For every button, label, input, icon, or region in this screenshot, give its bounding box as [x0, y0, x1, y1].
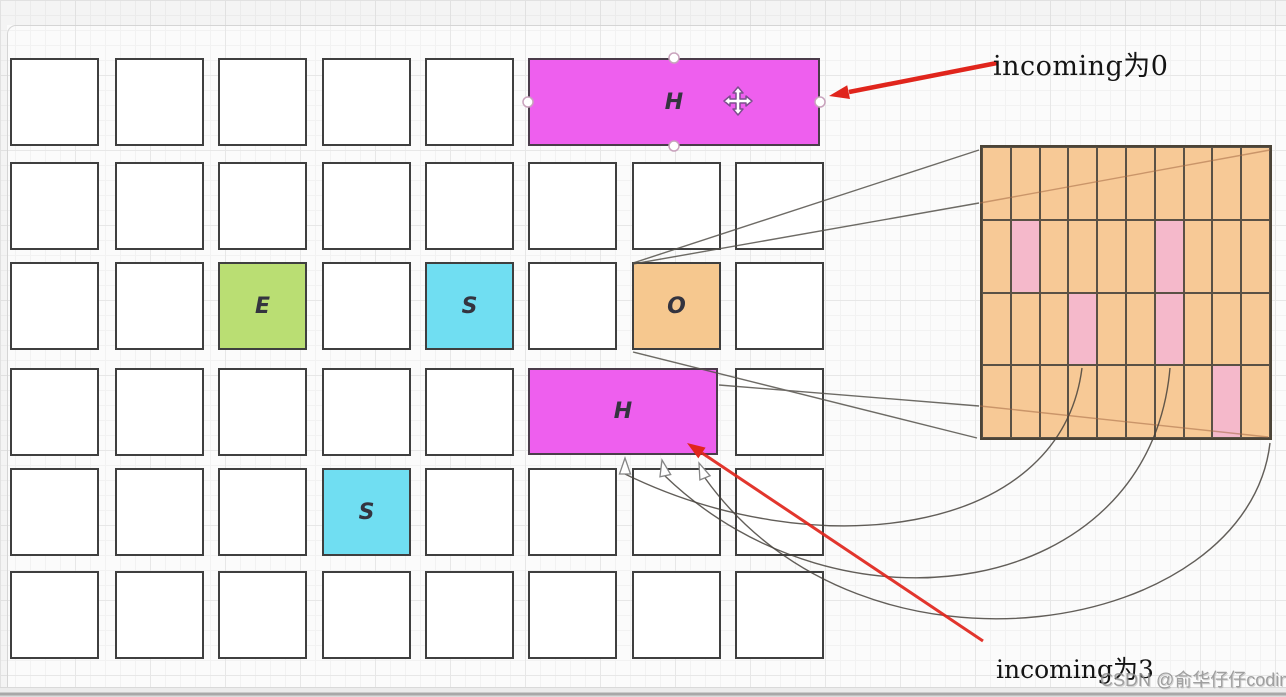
bitmap-cell[interactable]	[1040, 220, 1069, 293]
grid-cell[interactable]	[735, 162, 824, 250]
bitmap-cell[interactable]	[1184, 365, 1213, 438]
bitmap-cell[interactable]	[1126, 365, 1155, 438]
bitmap-cell[interactable]	[1011, 365, 1040, 438]
bitmap-cell[interactable]	[1097, 147, 1126, 220]
bitmap-cell[interactable]	[1126, 220, 1155, 293]
cell-letter: H	[665, 90, 683, 115]
grid-cell[interactable]	[115, 368, 204, 456]
h-block-bottom[interactable]: H	[528, 368, 718, 455]
grid-cell[interactable]	[10, 468, 99, 556]
bitmap-cell[interactable]	[1068, 147, 1097, 220]
grid-cell[interactable]	[218, 571, 307, 659]
grid-cell[interactable]	[10, 58, 99, 146]
bitmap-cell[interactable]	[1097, 220, 1126, 293]
grid-cell[interactable]	[322, 571, 411, 659]
grid-cell[interactable]	[218, 468, 307, 556]
grid-cell[interactable]	[735, 368, 824, 456]
bitmap-cell[interactable]	[982, 220, 1011, 293]
cell-e-r3c3[interactable]: E	[218, 262, 307, 350]
bitmap-cell[interactable]	[1097, 365, 1126, 438]
canvas-bottom-edge	[0, 687, 1286, 697]
bitmap-cell[interactable]	[1097, 293, 1126, 366]
grid-cell[interactable]	[632, 162, 721, 250]
h-block-top[interactable]: H	[528, 58, 820, 146]
cell-o-r3c7[interactable]: O	[632, 262, 721, 350]
grid-cell[interactable]	[528, 162, 617, 250]
grid-cell[interactable]	[425, 58, 514, 146]
bitmap-cell[interactable]	[1184, 147, 1213, 220]
bitmap-cell[interactable]	[1155, 365, 1184, 438]
grid-cell[interactable]	[322, 58, 411, 146]
bitmap-cell[interactable]	[1068, 220, 1097, 293]
bitmap-cell[interactable]	[1212, 220, 1241, 293]
grid-cell[interactable]	[425, 468, 514, 556]
bitmap-cell[interactable]	[1212, 293, 1241, 366]
grid-cell[interactable]	[115, 262, 204, 350]
grid-cell[interactable]	[528, 262, 617, 350]
bitmap-cell[interactable]	[982, 147, 1011, 220]
grid-cell[interactable]	[218, 162, 307, 250]
drawio-canvas: ESOSHH	[0, 0, 1286, 697]
bitmap-cell[interactable]	[1241, 293, 1270, 366]
grid-cell[interactable]	[425, 368, 514, 456]
grid-cell[interactable]	[735, 571, 824, 659]
bitmap-cell[interactable]	[1011, 293, 1040, 366]
bitmap-cell[interactable]	[1241, 365, 1270, 438]
bitmap-cell[interactable]	[1184, 293, 1213, 366]
bitmap-cell[interactable]	[1040, 365, 1069, 438]
cell-letter: O	[667, 294, 686, 319]
cell-s-r3c5[interactable]: S	[425, 262, 514, 350]
grid-cell[interactable]	[10, 162, 99, 250]
grid-cell[interactable]	[10, 571, 99, 659]
bitmap-cell[interactable]	[1155, 147, 1184, 220]
grid-cell[interactable]	[218, 58, 307, 146]
grid-cell[interactable]	[632, 468, 721, 556]
bitmap-cell[interactable]	[1241, 147, 1270, 220]
bitmap-cell[interactable]	[1241, 220, 1270, 293]
grid-cell[interactable]	[735, 468, 824, 556]
bitmap-cell-set[interactable]	[1155, 220, 1184, 293]
cell-letter: S	[462, 294, 478, 319]
bitmap-cell-set[interactable]	[1068, 293, 1097, 366]
grid-cell[interactable]	[322, 262, 411, 350]
cell-letter: E	[255, 294, 270, 319]
csdn-watermark: CSDN @俞华仔仔coding社区	[1100, 666, 1286, 692]
grid-cell[interactable]	[10, 368, 99, 456]
grid-cell[interactable]	[425, 571, 514, 659]
cell-letter: S	[359, 500, 375, 525]
bitmap-cell[interactable]	[1040, 147, 1069, 220]
bitmap-cell[interactable]	[1068, 365, 1097, 438]
bitmap-cell[interactable]	[1126, 147, 1155, 220]
grid-cell[interactable]	[632, 571, 721, 659]
grid-cell[interactable]	[322, 368, 411, 456]
bitmap-cell[interactable]	[1126, 293, 1155, 366]
grid-cell[interactable]	[115, 571, 204, 659]
cell-s-r5c4[interactable]: S	[322, 468, 411, 556]
grid-cell[interactable]	[528, 468, 617, 556]
bitmap-cell[interactable]	[1011, 147, 1040, 220]
bitmap-cell-set[interactable]	[1011, 220, 1040, 293]
bitmap-cell-set[interactable]	[1212, 365, 1241, 438]
bitmap-cell-set[interactable]	[1155, 293, 1184, 366]
grid-cell[interactable]	[115, 162, 204, 250]
bitmap-cell[interactable]	[1212, 147, 1241, 220]
bitmap-cell[interactable]	[982, 365, 1011, 438]
bitmap-grid[interactable]	[980, 145, 1272, 440]
bitmap-cell[interactable]	[1040, 293, 1069, 366]
grid-cell[interactable]	[115, 58, 204, 146]
grid-cell[interactable]	[322, 162, 411, 250]
grid-cell[interactable]	[735, 262, 824, 350]
label-incoming-0: incoming为0	[993, 44, 1169, 83]
bitmap-cell[interactable]	[982, 293, 1011, 366]
grid-cell[interactable]	[528, 571, 617, 659]
grid-cell[interactable]	[218, 368, 307, 456]
grid-cell[interactable]	[115, 468, 204, 556]
bitmap-cell[interactable]	[1184, 220, 1213, 293]
cell-letter: H	[614, 399, 632, 424]
grid-cell[interactable]	[425, 162, 514, 250]
canvas-top-margin	[0, 0, 1286, 25]
grid-cell[interactable]	[10, 262, 99, 350]
canvas-left-margin	[0, 25, 7, 687]
